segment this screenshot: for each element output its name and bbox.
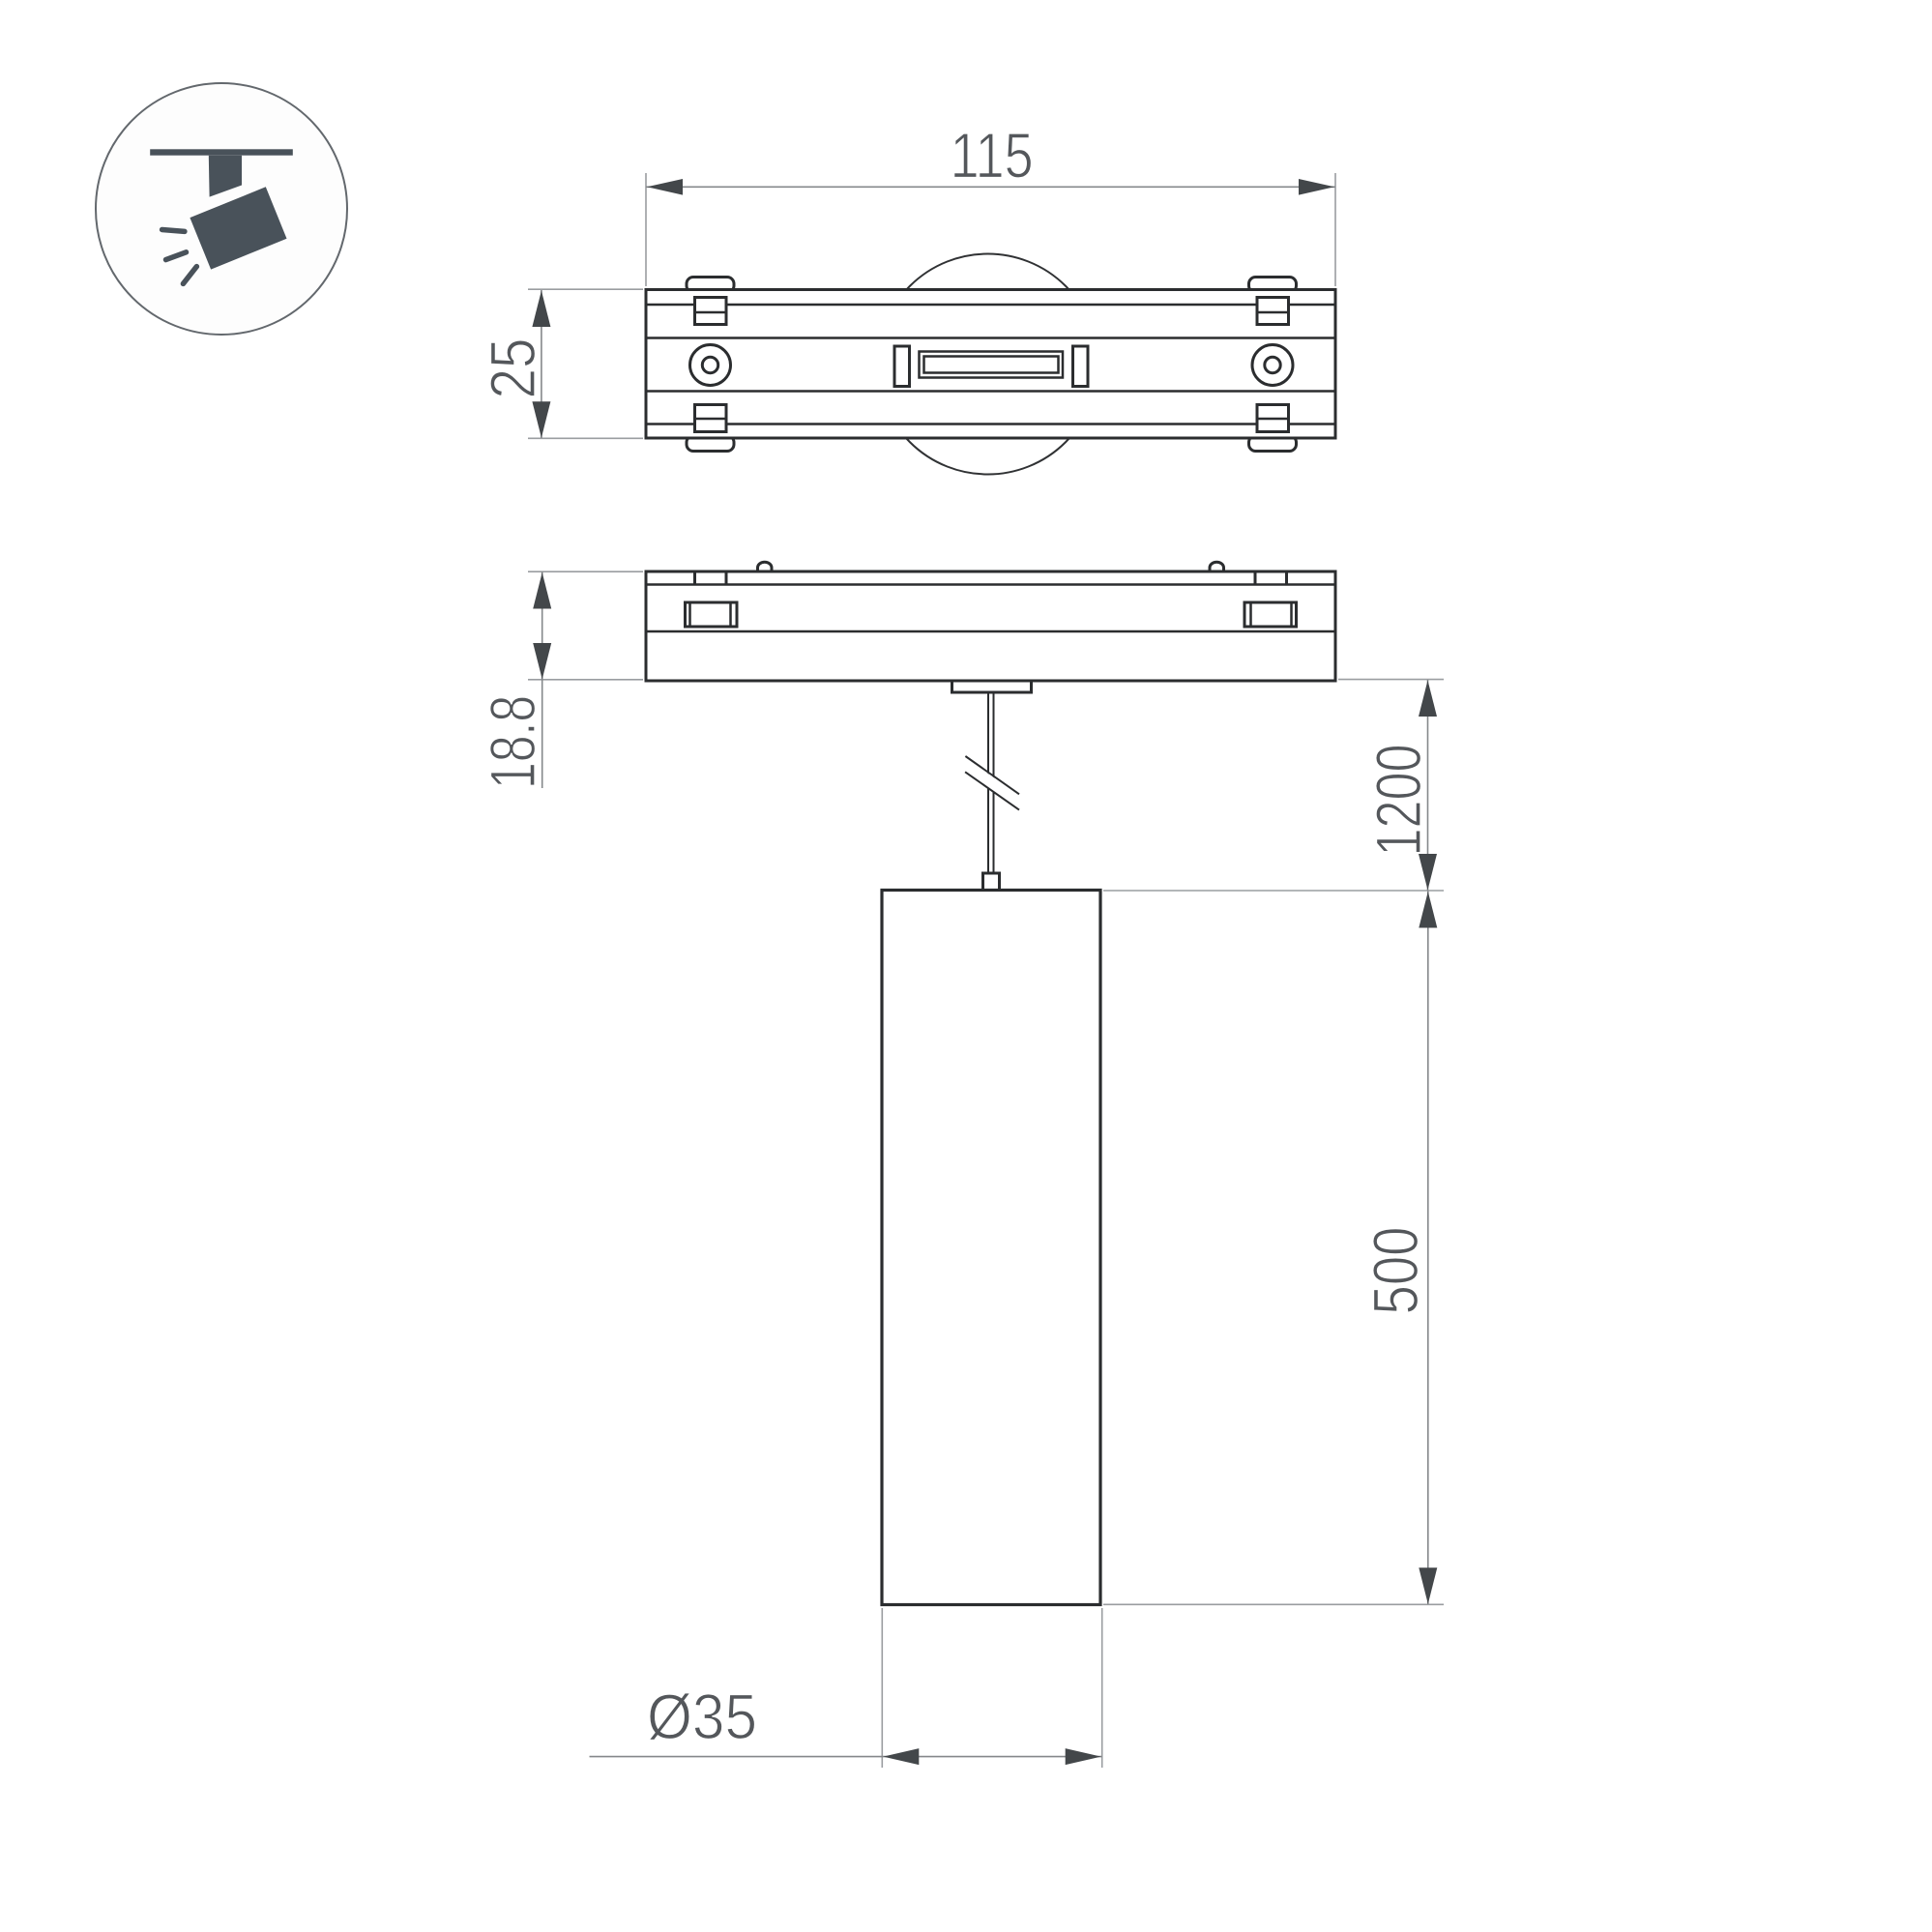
svg-text:1200: 1200 [1362,745,1434,857]
svg-text:25: 25 [477,338,548,399]
svg-text:500: 500 [1360,1227,1431,1315]
svg-text:18.8: 18.8 [477,695,548,789]
svg-text:115: 115 [951,120,1034,191]
svg-text:Ø35: Ø35 [647,1681,757,1752]
